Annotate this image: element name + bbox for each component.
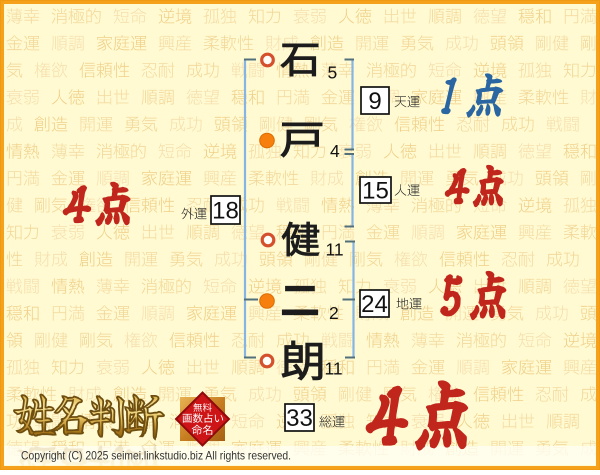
svg-text:11: 11 bbox=[325, 359, 343, 379]
svg-text:4: 4 bbox=[330, 141, 340, 161]
svg-text:2: 2 bbox=[329, 303, 339, 323]
svg-text:24: 24 bbox=[361, 291, 388, 318]
svg-text:15: 15 bbox=[362, 178, 389, 205]
svg-text:33: 33 bbox=[286, 405, 313, 432]
svg-text:Copyright (C) 2025 seimei.link: Copyright (C) 2025 seimei.linkstudio.biz… bbox=[21, 449, 291, 463]
svg-text:9: 9 bbox=[368, 88, 381, 115]
svg-text:18: 18 bbox=[212, 198, 239, 225]
svg-text:5: 5 bbox=[328, 63, 338, 83]
svg-text:11: 11 bbox=[326, 240, 344, 260]
